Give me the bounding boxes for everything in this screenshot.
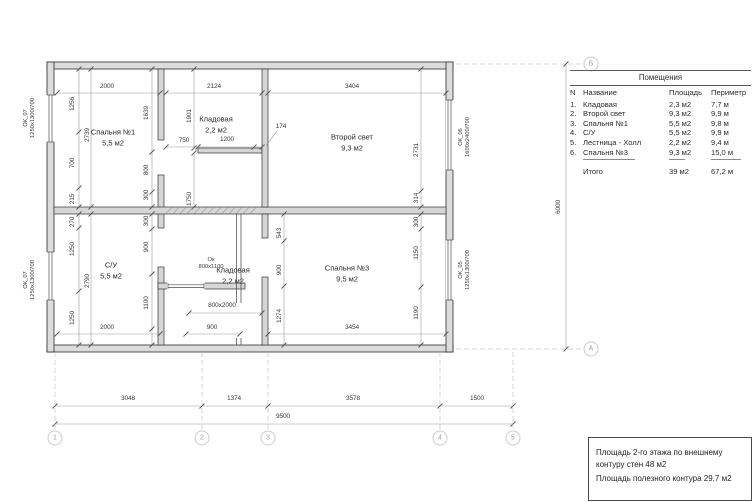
table-row: 5.Лестница - Холл2,2 м29,4 м xyxy=(570,138,751,148)
dimension-label: 300 xyxy=(144,216,151,227)
interior-walls xyxy=(54,69,446,345)
dimension-label: 900 xyxy=(144,242,151,253)
rooms-table-body: 1.Кладовая2,3 м27,7 м2.Второй свет9,3 м2… xyxy=(570,100,751,158)
dimension-label: 700 xyxy=(70,158,77,169)
header-perimeter: Периметр xyxy=(711,88,751,98)
dimension-label: 2790 xyxy=(85,274,92,288)
header-n: N xyxy=(570,88,583,98)
rooms-table-title: Помещения xyxy=(570,70,751,86)
table-row: 4.С/У5,5 м29,9 м xyxy=(570,128,751,138)
dimension-label: 314 xyxy=(414,193,421,204)
dimension-label: 1274 xyxy=(277,309,284,323)
dimension-label: 9500 xyxy=(276,414,290,421)
dimension-label: 1190 xyxy=(414,306,421,320)
dimension-label: 3454 xyxy=(345,325,359,332)
window-label: ОК_051250х1300/700 xyxy=(458,250,472,290)
table-row: 2.Второй свет9,3 м29,9 м xyxy=(570,109,751,119)
dimension-label: 1150 xyxy=(414,246,421,260)
dimension-label: 6000 xyxy=(556,200,563,214)
axis-bubble: 5 xyxy=(506,431,521,446)
total-perimeter: 67,2 м xyxy=(711,167,751,177)
dimension-label: 1200 xyxy=(220,137,234,144)
note-line-1: Площадь 2-го этажа по внешнему xyxy=(596,447,744,459)
dimension-label: 1750 xyxy=(187,192,194,206)
room-label: С/У5,5 м2 xyxy=(100,261,122,282)
dimension-label: 750 xyxy=(179,138,190,145)
dimension-label: 2000 xyxy=(100,84,114,91)
header-area: Площадь xyxy=(669,88,711,98)
axis-bubble: А xyxy=(584,342,599,357)
dimension-label: 900 xyxy=(207,325,218,332)
dimension-label: 300 xyxy=(414,217,421,228)
axis-bubble: 1 xyxy=(48,431,63,446)
dimension-label: 270 xyxy=(70,217,77,228)
rooms-table-total: Итого 39 м2 67,2 м xyxy=(570,167,751,177)
table-row: 6.Спальня №39,3 м215,0 м xyxy=(570,148,751,158)
dimension-label: 900 xyxy=(277,265,284,276)
window-label: Ок800х1100 xyxy=(198,257,223,271)
rooms-table: Помещения N Название Площадь Периметр 1.… xyxy=(570,70,751,177)
dimension-label: 215 xyxy=(70,194,77,205)
dimension-label: 1256 xyxy=(70,97,77,111)
rooms-table-header: N Название Площадь Периметр xyxy=(570,88,751,98)
total-label: Итого xyxy=(583,167,669,177)
dimension-label: 2000 xyxy=(100,325,114,332)
room-label: Спальня №15,5 м2 xyxy=(91,128,135,149)
room-label: Спальня №39,5 м2 xyxy=(325,264,369,285)
dimension-label: 1374 xyxy=(227,396,241,403)
dimension-label: 174 xyxy=(276,124,287,131)
room-label: Кладовая2,2 м2 xyxy=(199,115,233,136)
window-label: ОК_071250х1300/700 xyxy=(23,98,37,138)
dimension-label: 543 xyxy=(277,228,284,239)
total-area: 39 м2 xyxy=(669,167,711,177)
table-row: 3.Спальня №15,5 м29,8 м xyxy=(570,119,751,129)
dimension-label: 3048 xyxy=(121,396,135,403)
floor-plan-sheet: 2000212434047501200174125670021527391639… xyxy=(0,0,753,502)
dimension-label: 3404 xyxy=(345,84,359,91)
dimension-label: 1250 xyxy=(70,242,77,256)
table-separator xyxy=(570,159,751,165)
note-line-2: контуру стен 48 м2 xyxy=(596,459,744,471)
window-label: ОК_061600х2400/700 xyxy=(458,117,472,157)
dimension-label: 1250 xyxy=(70,311,77,325)
axis-bubble: 4 xyxy=(433,431,448,446)
dimension-label: 1639 xyxy=(144,106,151,120)
room-label: Второй свет9,3 м2 xyxy=(331,133,373,154)
table-row: 1.Кладовая2,3 м27,7 м xyxy=(570,100,751,110)
header-name: Название xyxy=(583,88,669,98)
dimension-label: 1500 xyxy=(470,396,484,403)
dimension-label: 3578 xyxy=(346,396,360,403)
axis-bubble: 3 xyxy=(261,431,276,446)
note-box: Площадь 2-го этажа по внешнему контуру с… xyxy=(588,437,752,501)
window-label: ОК_071250х1300/700 xyxy=(23,260,37,300)
dimension-lines xyxy=(53,62,584,431)
dimension-label: 800 xyxy=(144,165,151,176)
dimension-label: 1901 xyxy=(187,109,194,123)
dimension-label: 1100 xyxy=(144,296,151,310)
dimension-label: 300 xyxy=(144,190,151,201)
note-line-3: Площадь полезного контура 29,7 м2 xyxy=(596,473,744,485)
dimension-label: 800х2000 xyxy=(208,303,236,310)
dimension-label: 2124 xyxy=(207,84,221,91)
axis-bubble: 2 xyxy=(195,431,210,446)
dimension-label: 2731 xyxy=(414,143,421,157)
